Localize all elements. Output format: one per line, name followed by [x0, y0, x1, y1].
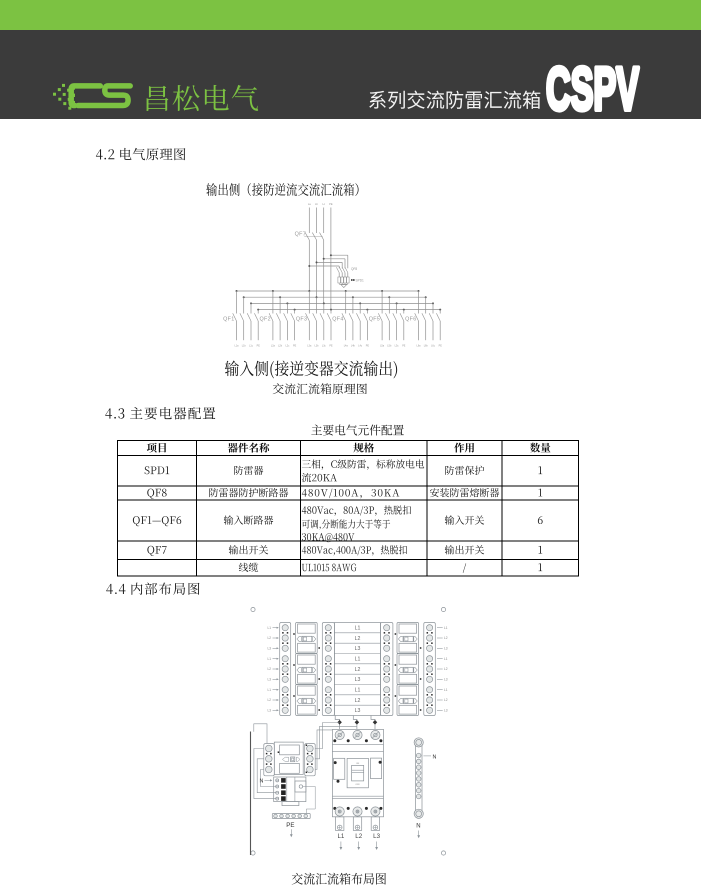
svg-text:L1: L1	[355, 626, 361, 632]
svg-text:L2: L2	[444, 636, 448, 640]
svg-text:PE: PE	[293, 345, 297, 348]
svg-text:L1: L1	[355, 657, 361, 663]
svg-text:L1: L1	[355, 688, 361, 694]
svg-text:QF2: QF2	[260, 317, 271, 323]
svg-text:L6b: L6b	[424, 345, 429, 348]
svg-text:PE: PE	[366, 345, 370, 348]
svg-text:QF8: QF8	[351, 267, 357, 271]
svg-text:N: N	[260, 778, 264, 784]
svg-text:QF3: QF3	[296, 317, 307, 323]
svg-text:ON: ON	[356, 763, 360, 765]
svg-text:L3: L3	[444, 678, 448, 682]
svg-text:L6c: L6c	[431, 345, 436, 348]
svg-text:PE: PE	[402, 345, 406, 348]
svg-text:L2: L2	[355, 636, 361, 642]
svg-text:L2: L2	[355, 698, 361, 704]
svg-text:L3: L3	[355, 677, 361, 683]
svg-text:L4b: L4b	[351, 345, 356, 348]
svg-text:L1a: L1a	[235, 345, 240, 348]
svg-text:PE: PE	[329, 345, 333, 348]
svg-text:L1: L1	[444, 688, 448, 692]
svg-text:L3: L3	[355, 646, 361, 652]
svg-text:L3a: L3a	[307, 345, 312, 348]
svg-text:L3b: L3b	[315, 345, 320, 348]
svg-text:L2: L2	[267, 667, 271, 671]
svg-text:L1: L1	[444, 657, 448, 661]
svg-text:L2a: L2a	[271, 345, 276, 348]
svg-text:L1: L1	[267, 657, 271, 661]
svg-text:L1: L1	[444, 626, 448, 630]
svg-text:QF5: QF5	[369, 317, 380, 323]
svg-text:SPD1: SPD1	[356, 279, 365, 283]
svg-text:L5a: L5a	[380, 345, 385, 348]
svg-text:OFF: OFF	[355, 784, 360, 786]
svg-text:L2c: L2c	[285, 345, 290, 348]
svg-text:L4a: L4a	[344, 345, 349, 348]
svg-text:L2: L2	[267, 636, 271, 640]
svg-text:L3: L3	[373, 833, 380, 840]
svg-text:L2: L2	[444, 698, 448, 702]
svg-text:L1b: L1b	[242, 345, 247, 348]
svg-text:L2: L2	[355, 833, 362, 840]
svg-text:L5c: L5c	[395, 345, 400, 348]
svg-text:L3: L3	[267, 678, 271, 682]
svg-text:L3c: L3c	[322, 345, 327, 348]
svg-text:L1: L1	[267, 626, 271, 630]
svg-text:N: N	[416, 824, 420, 830]
svg-text:PE: PE	[257, 345, 261, 348]
svg-text:Lb: Lb	[315, 202, 318, 206]
svg-text:Lc: Lc	[322, 202, 325, 206]
svg-text:L4c: L4c	[358, 345, 363, 348]
svg-text:L3: L3	[355, 708, 361, 714]
svg-text:L2: L2	[355, 667, 361, 673]
svg-text:L1: L1	[267, 688, 271, 692]
svg-text:QF1: QF1	[223, 317, 234, 323]
svg-text:L2: L2	[267, 698, 271, 702]
svg-text:L2: L2	[444, 667, 448, 671]
svg-text:L5b: L5b	[387, 345, 392, 348]
svg-text:L1: L1	[337, 833, 344, 840]
svg-text:N: N	[433, 754, 437, 760]
svg-text:PE: PE	[329, 202, 333, 206]
svg-text:QF6: QF6	[405, 317, 416, 323]
svg-text:PE: PE	[286, 822, 294, 829]
svg-text:L3: L3	[444, 647, 448, 651]
svg-text:QF7: QF7	[295, 232, 306, 238]
svg-text:L3: L3	[267, 709, 271, 713]
svg-text:L2b: L2b	[278, 345, 283, 348]
svg-text:L3: L3	[267, 647, 271, 651]
svg-text:L6a: L6a	[417, 345, 422, 348]
svg-text:PE: PE	[439, 345, 443, 348]
svg-text:L3: L3	[444, 709, 448, 713]
svg-text:QF4: QF4	[332, 317, 343, 323]
svg-text:L1c: L1c	[249, 345, 254, 348]
svg-text:La: La	[308, 202, 311, 206]
